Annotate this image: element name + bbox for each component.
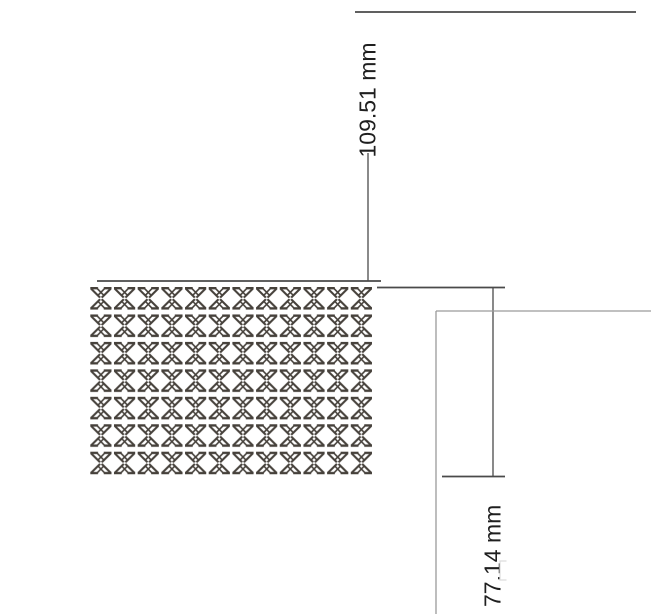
svg-text:77.14 mm: 77.14 mm	[480, 505, 506, 607]
svg-text:109.51 mm: 109.51 mm	[355, 42, 381, 157]
